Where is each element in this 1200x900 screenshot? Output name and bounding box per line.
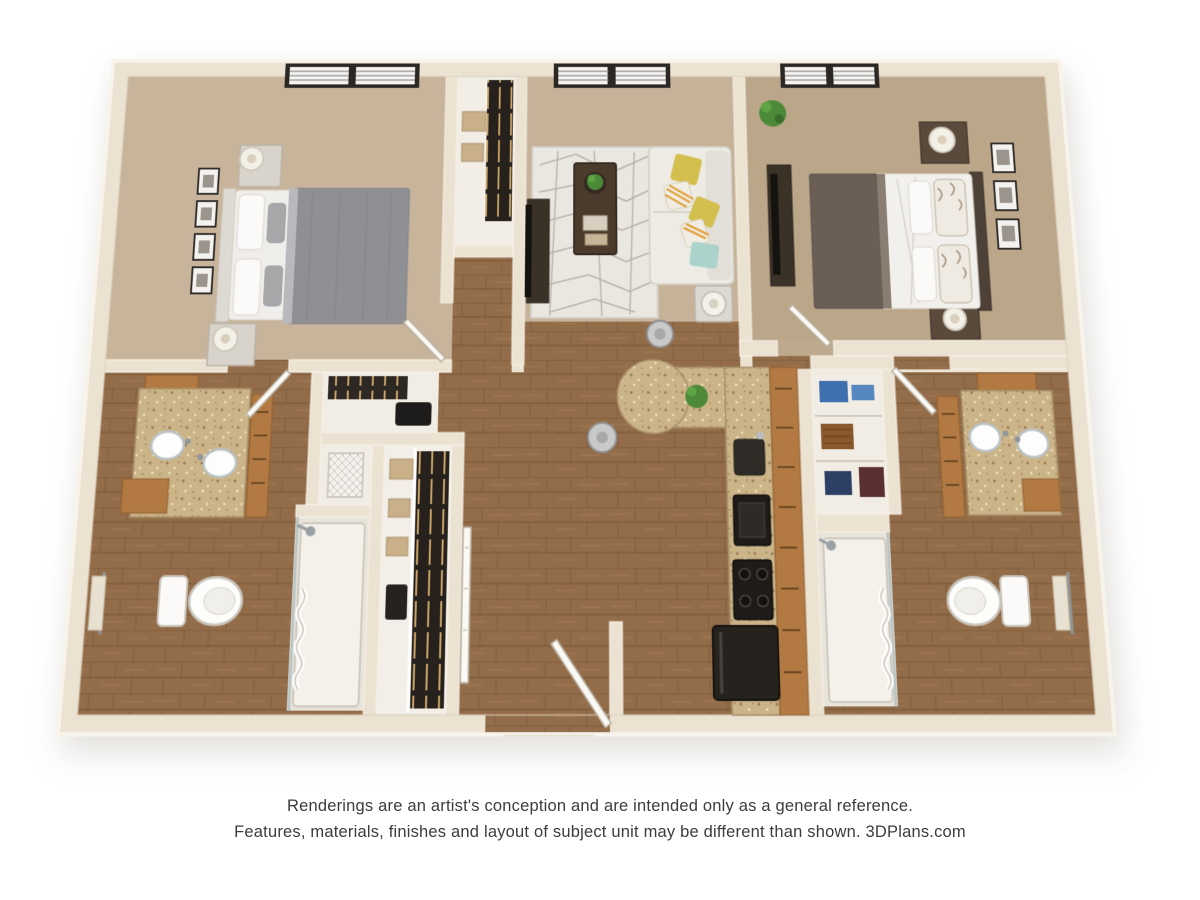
toilet <box>157 576 243 626</box>
bar-stool <box>588 423 617 452</box>
disclaimer-line-2: Features, materials, finishes and layout… <box>0 819 1200 845</box>
bed-queen-gray <box>215 188 410 323</box>
window-bedroom-1 <box>284 64 419 88</box>
laundry-hamper <box>327 453 363 497</box>
tv-console <box>525 199 550 303</box>
disclaimer-text: Renderings are an artist's conception an… <box>0 793 1200 845</box>
sofa-sectional <box>649 147 734 284</box>
bed-queen-brown <box>809 172 991 310</box>
nightstand <box>207 324 256 366</box>
floor-plan-rendering <box>56 59 1118 736</box>
shower-2 <box>819 532 896 706</box>
disclaimer-line-1: Renderings are an artist's conception an… <box>0 793 1200 819</box>
window-bedroom-2 <box>780 64 880 88</box>
toilet <box>946 576 1030 626</box>
side-table-lamp <box>695 286 733 322</box>
shower-1 <box>289 517 366 711</box>
bar-stool <box>647 321 674 348</box>
window-living-room <box>554 64 671 88</box>
media-dresser <box>767 165 795 286</box>
refrigerator <box>713 626 780 700</box>
nightstand <box>919 122 969 163</box>
wall-oven <box>733 495 771 546</box>
bedroom-1-door-threshold <box>439 303 452 360</box>
vanity-double-1 <box>120 375 274 517</box>
range-cooktop <box>733 560 774 620</box>
entry-stoop <box>503 734 595 736</box>
coffee-table <box>574 163 616 254</box>
nightstand <box>238 145 282 186</box>
